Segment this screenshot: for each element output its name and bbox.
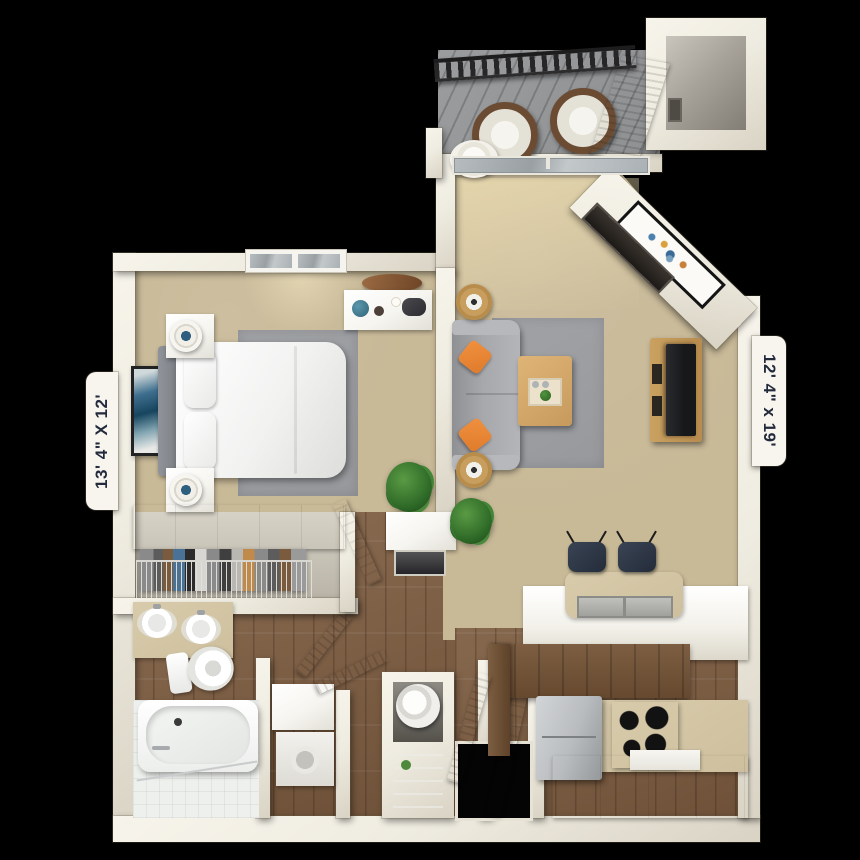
side-table-with-lamp — [456, 284, 492, 320]
tray-plant — [540, 390, 551, 401]
stool-seat — [568, 542, 606, 572]
pantry-items — [401, 760, 411, 770]
nightstand-lamp — [170, 320, 202, 352]
bar-sink — [577, 596, 673, 618]
nightstand-lamp — [170, 474, 202, 506]
wall-balcony-left — [426, 128, 442, 178]
bed-headboard — [158, 346, 178, 476]
tray-cup — [542, 381, 549, 388]
bathtub-drain — [174, 718, 182, 726]
living-room-dimension-label: 12' 4" x 19' — [759, 354, 779, 447]
sofa-cushion-seam — [466, 393, 518, 395]
dresser-vase-blue — [352, 300, 369, 317]
side-table-with-lamp — [456, 452, 492, 488]
dresser — [344, 290, 432, 330]
water-heater-tank — [396, 684, 440, 728]
bar-sink-divider — [623, 598, 626, 616]
wall-outer-bottom — [113, 816, 760, 842]
washer-dryer-front — [276, 732, 334, 786]
dryer-door — [291, 746, 319, 774]
bedroom-window-pane — [250, 254, 292, 268]
bedroom-dimension-tab: 13' 4" X 12' — [86, 372, 118, 510]
hall-cabinet-niche — [394, 550, 446, 576]
bedroom-dimension-label: 13' 4" X 12' — [92, 394, 112, 489]
sink-faucet — [197, 610, 205, 615]
hall-cabinet — [386, 512, 456, 550]
bathtub — [138, 700, 258, 772]
refrigerator-handle — [542, 736, 596, 738]
pantry-niche — [393, 754, 443, 808]
kitchen-tall-cabinet — [488, 644, 510, 756]
tv-stand-shelf — [652, 396, 662, 416]
wall-outer-left — [113, 253, 135, 840]
bathtub-faucet — [152, 746, 170, 750]
bed-pillow — [184, 412, 216, 470]
sunlight-patch-bedroom — [246, 274, 358, 332]
toilet — [165, 644, 237, 699]
kitchen-upper-cabinets — [490, 644, 690, 698]
bathroom-sink — [137, 608, 177, 638]
dishwasher-panel — [630, 750, 700, 770]
bar-stool — [618, 542, 656, 574]
sofa — [452, 320, 520, 470]
bathtub-basin — [146, 706, 250, 764]
sink-faucet — [153, 604, 161, 609]
coffee-table-tray — [528, 378, 562, 406]
sliding-door-divider — [546, 158, 550, 169]
storage-vent — [668, 98, 682, 122]
duvet-fold — [294, 346, 297, 474]
bathroom-sink — [181, 614, 221, 644]
tray-cup — [532, 381, 539, 388]
tv-stand — [650, 338, 702, 442]
dresser-bag — [402, 298, 426, 316]
stool-seat — [618, 542, 656, 572]
bedroom-plant — [386, 462, 432, 512]
bed-pillow — [184, 350, 216, 408]
bedroom-window — [246, 250, 346, 272]
toilet-bowl — [185, 644, 237, 694]
apartment-floorplan: 13' 4" X 12' 12' 4" x 19' — [0, 0, 860, 860]
tv-stand-shelf — [652, 364, 662, 384]
coffee-table — [518, 356, 572, 426]
bedroom-window-pane — [298, 254, 340, 268]
living-room-dimension-tab: 12' 4" x 19' — [752, 336, 786, 466]
closet-wire-rack — [136, 560, 312, 598]
television — [666, 344, 696, 436]
sofa-armrest — [452, 320, 520, 335]
sliding-glass-door — [452, 156, 650, 175]
dresser-vase-small — [374, 306, 384, 316]
living-room-plant — [450, 498, 492, 544]
wall-laundry-east — [336, 690, 350, 818]
closet-shelf — [133, 505, 345, 549]
dresser-candle — [392, 298, 400, 306]
bar-stool — [568, 542, 606, 574]
